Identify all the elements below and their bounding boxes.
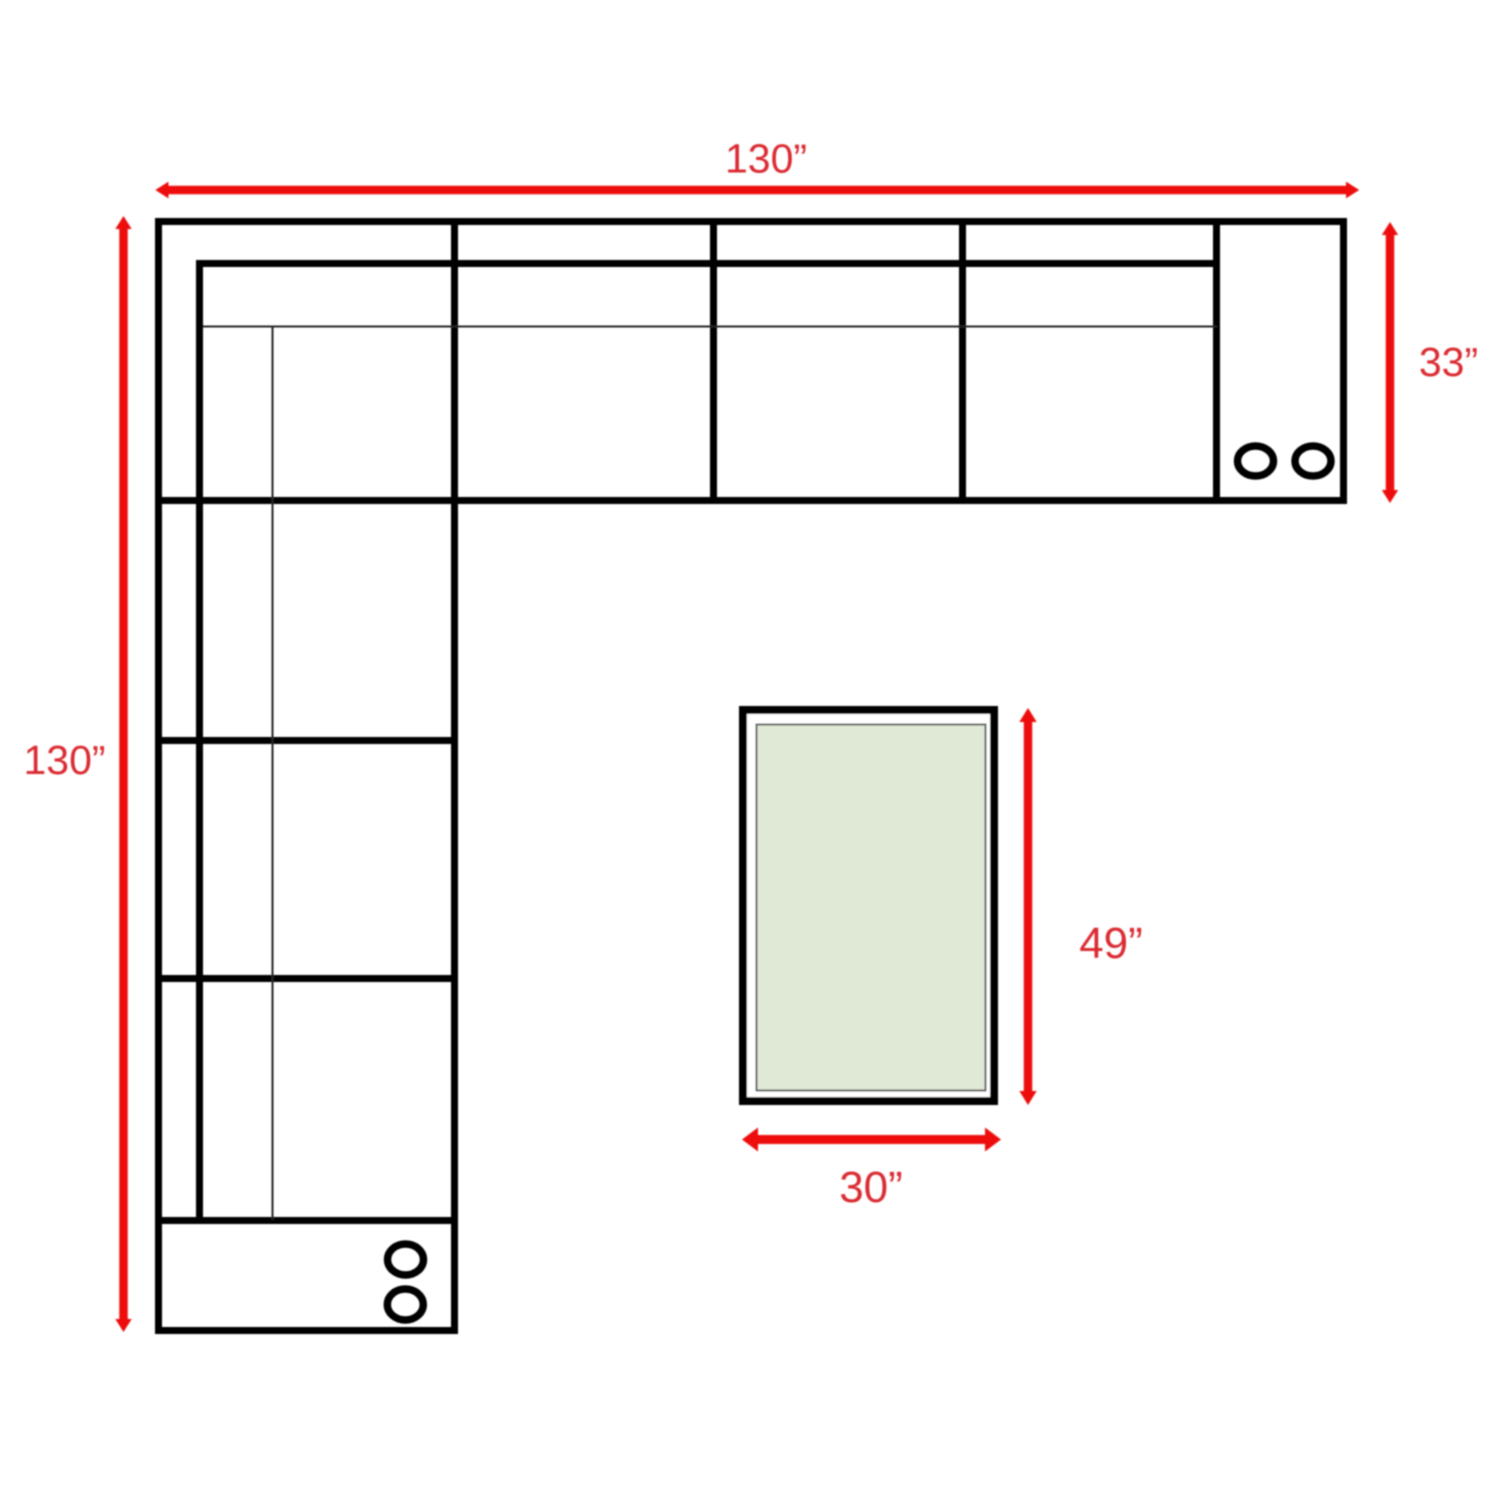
svg-text:30”: 30” [839,1163,903,1212]
svg-text:49”: 49” [1079,919,1143,968]
svg-text:33”: 33” [1419,339,1478,385]
svg-text:130”: 130” [725,136,807,182]
svg-text:130”: 130” [23,737,105,783]
